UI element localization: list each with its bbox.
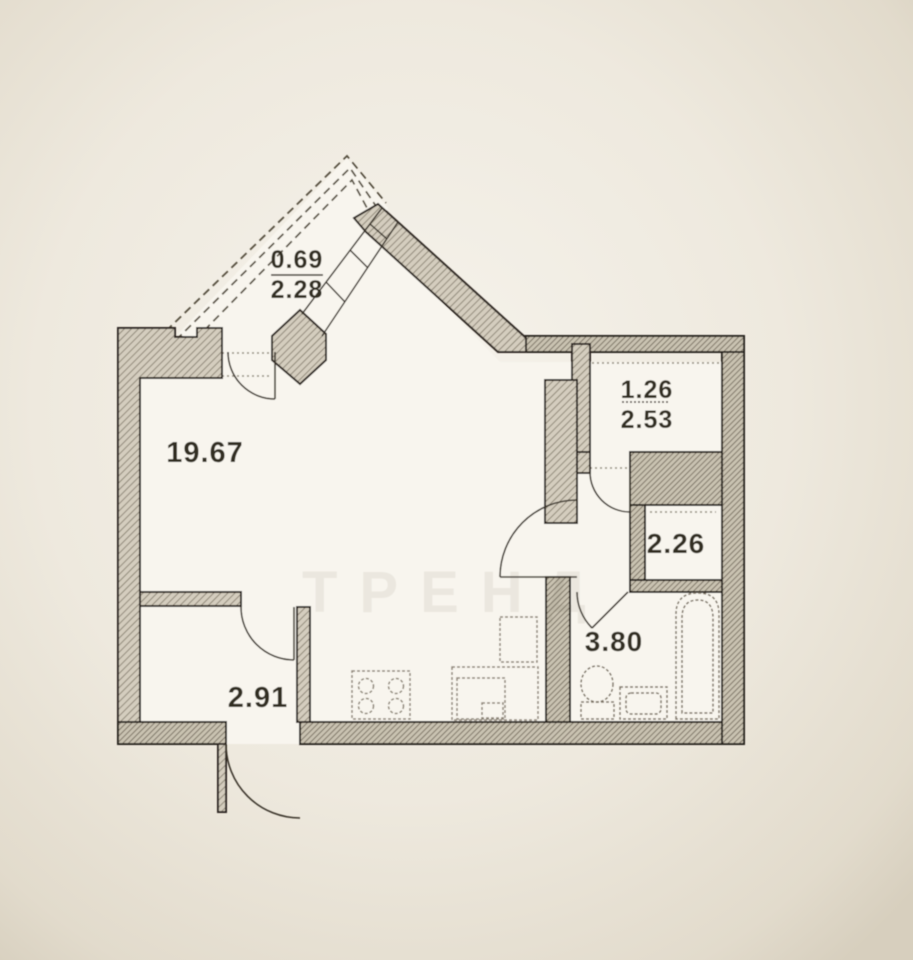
bathroom-area-label: 3.80 [585, 626, 644, 657]
wall-closet-bottom [630, 580, 722, 592]
balcony-area-full-label: 2.28 [271, 276, 324, 304]
wall-bottom-left [118, 722, 226, 744]
wall-bottom-right [300, 722, 744, 744]
balcony-area-reduced-label: 0.69 [271, 246, 324, 274]
wall-chunk-above-closet [630, 452, 722, 505]
wall-entrance-spur [218, 744, 226, 812]
wall-under-corridor [577, 452, 590, 473]
wall-closet-left [630, 505, 645, 580]
closet-area-label: 2.26 [647, 528, 706, 559]
wall-right-outer [722, 338, 744, 744]
hallway-area-label: 2.91 [228, 682, 288, 714]
wall-hallway-top [140, 592, 241, 606]
watermark-text: ТРЕНД [302, 560, 608, 625]
corridor-area-full-label: 2.53 [621, 406, 674, 434]
entrance-gap-floor [226, 722, 300, 744]
living-room-area-label: 19.67 [166, 437, 244, 469]
corridor-area-reduced-label: 1.26 [621, 376, 674, 404]
wall-corridor-top [505, 336, 744, 352]
floor-plan-photo: 19.67 0.69 2.28 1.26 2.53 2.26 3.80 2.91… [0, 0, 913, 960]
